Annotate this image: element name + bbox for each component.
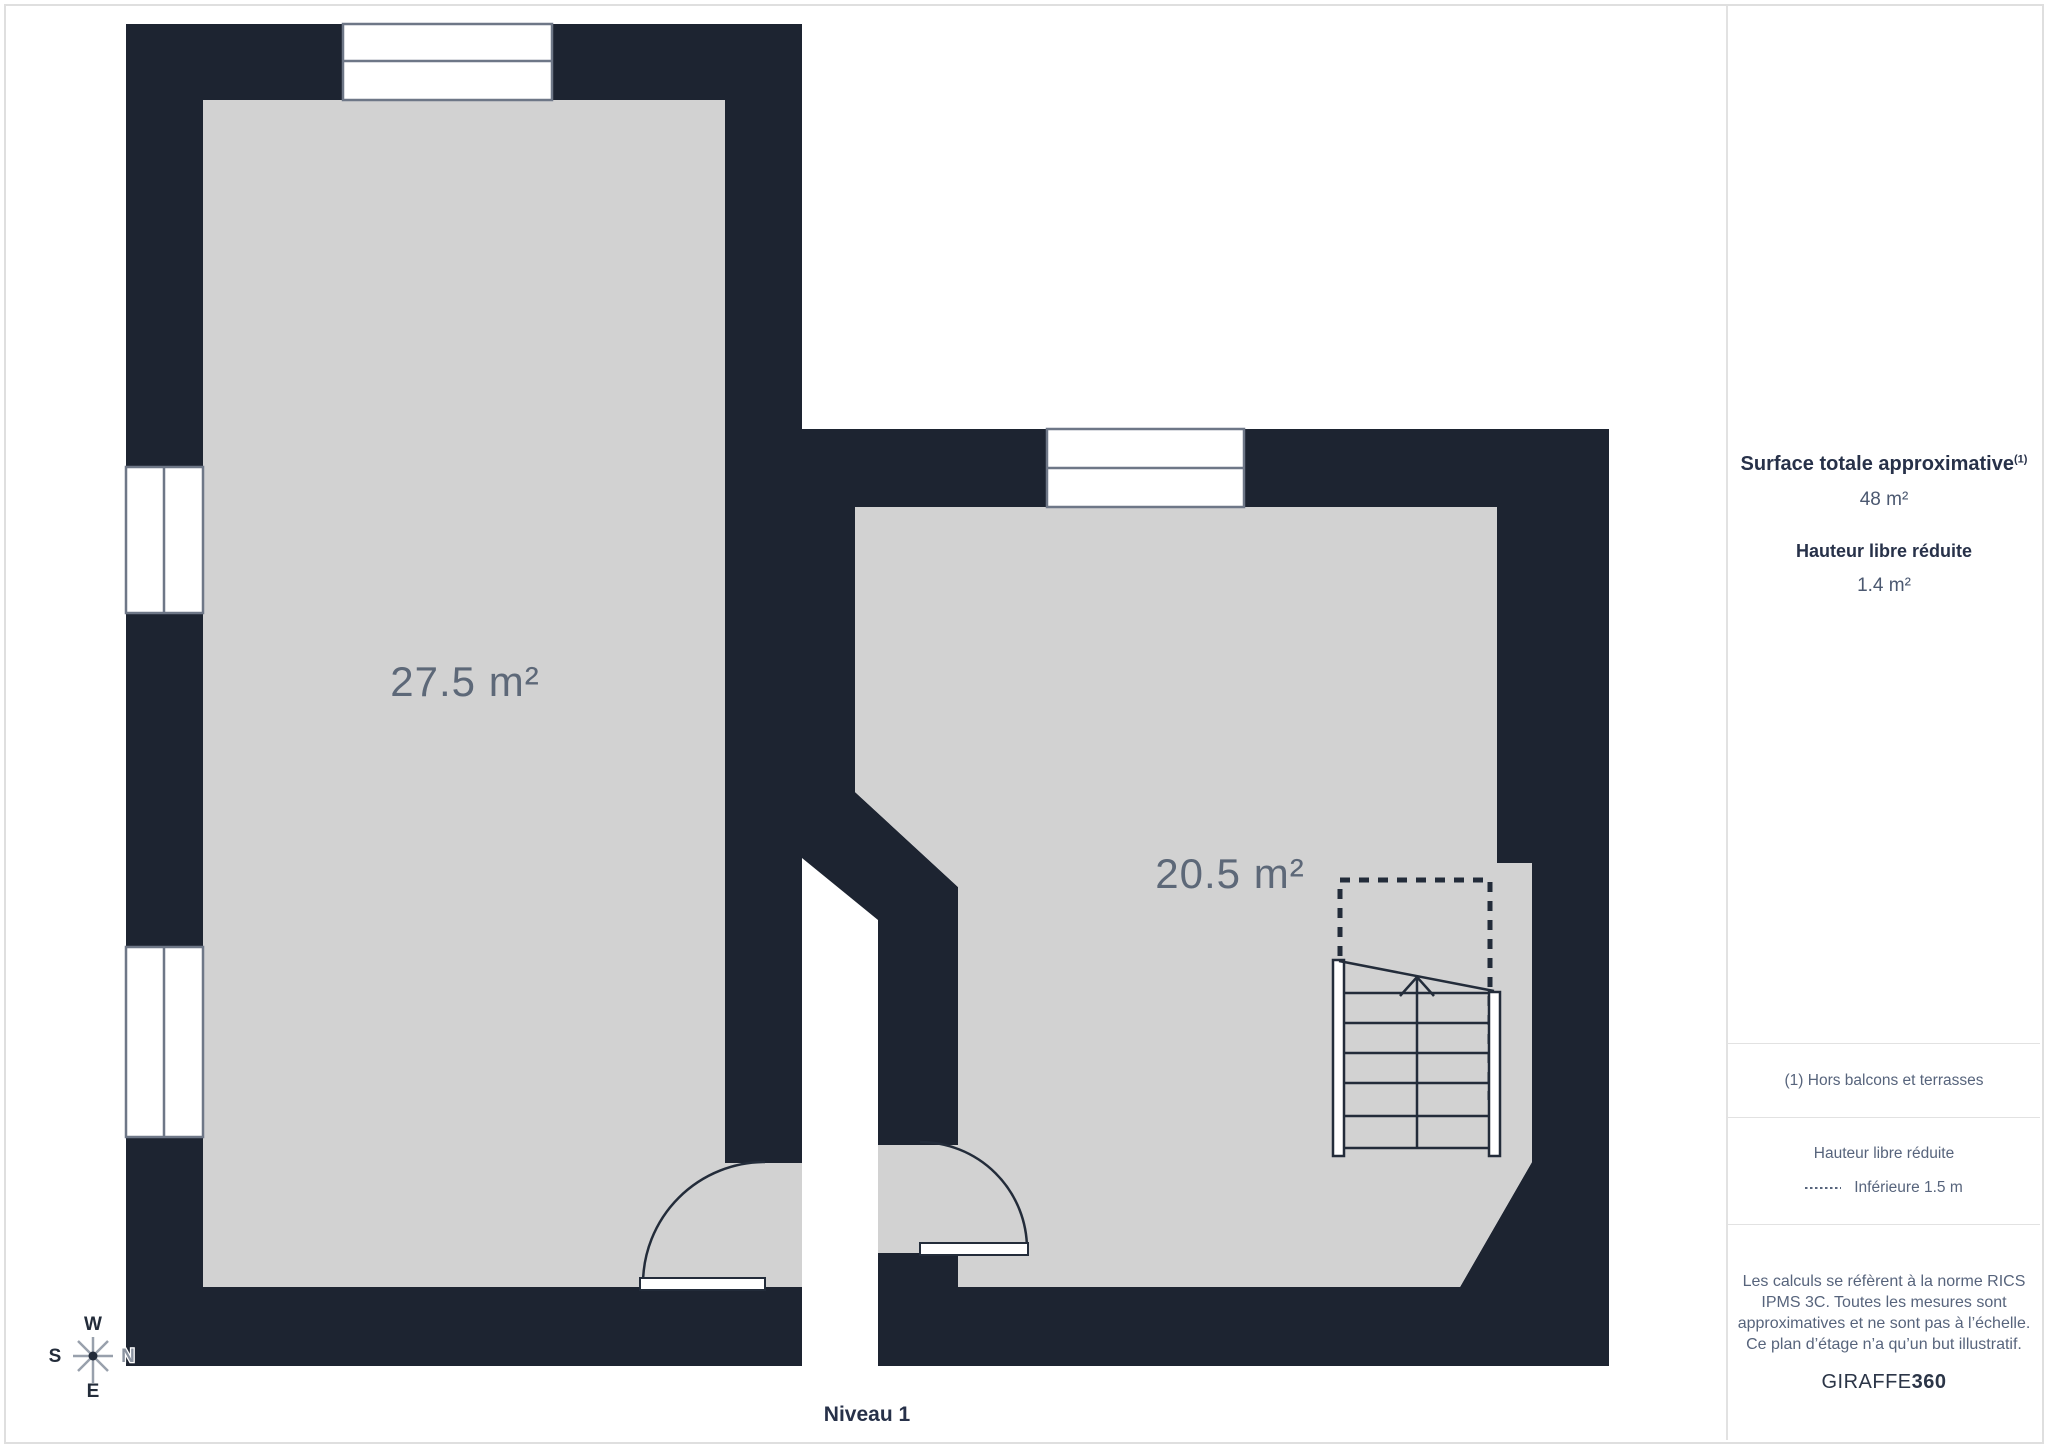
- door-leaf: [920, 1243, 1028, 1255]
- legend-row: Inférieure 1.5 m: [1805, 1179, 1963, 1197]
- compass-rose: W S N E: [49, 1314, 135, 1402]
- dashed-line-swatch: [1805, 1187, 1841, 1189]
- room-area-label: 20.5 m²: [1090, 850, 1370, 898]
- brand-logo: GIRAFFE360: [1821, 1371, 1946, 1394]
- window-top-left: [343, 24, 552, 100]
- compass-letter-east: E: [87, 1381, 100, 1402]
- footnote-section: (1) Hors balcons et terrasses: [1728, 1043, 2040, 1117]
- reduced-height-heading: Hauteur libre réduite: [1796, 541, 1972, 562]
- total-area-value: 48 m²: [1860, 489, 1909, 511]
- legend-section: Hauteur libre réduite Inférieure 1.5 m: [1728, 1117, 2040, 1224]
- compass-letter-north: N: [121, 1346, 135, 1367]
- total-area-heading: Surface totale approximative(1): [1741, 453, 2028, 476]
- door-leaf: [640, 1278, 765, 1290]
- level-label: Niveau 1: [757, 1403, 977, 1427]
- window-left-upper: [126, 467, 203, 613]
- measurements-sidebar: Surface totale approximative(1) 48 m² Ha…: [1726, 6, 2040, 1440]
- footnote-marker: (1): [2014, 453, 2027, 465]
- legend-heading: Hauteur libre réduite: [1814, 1145, 1954, 1163]
- disclaimer-text: Les calculs se réfèrent à la norme RICS …: [1733, 1271, 2035, 1355]
- disclaimer-section: Les calculs se réfèrent à la norme RICS …: [1728, 1224, 2040, 1440]
- compass-letter-west: W: [84, 1314, 102, 1335]
- window-left-lower: [126, 947, 203, 1137]
- compass-letter-south: S: [49, 1346, 62, 1367]
- compass-center-dot: [89, 1352, 98, 1361]
- brand-name: GIRAFFE: [1821, 1371, 1911, 1393]
- legend-label: Inférieure 1.5 m: [1854, 1179, 1963, 1197]
- room-area-label: 27.5 m²: [325, 658, 605, 706]
- totals-section: Surface totale approximative(1) 48 m² Ha…: [1728, 6, 2040, 1043]
- reduced-height-value: 1.4 m²: [1857, 575, 1911, 597]
- footnote-text: (1) Hors balcons et terrasses: [1785, 1072, 1984, 1090]
- window-top-right: [1047, 429, 1244, 507]
- brand-suffix: 360: [1912, 1371, 1947, 1393]
